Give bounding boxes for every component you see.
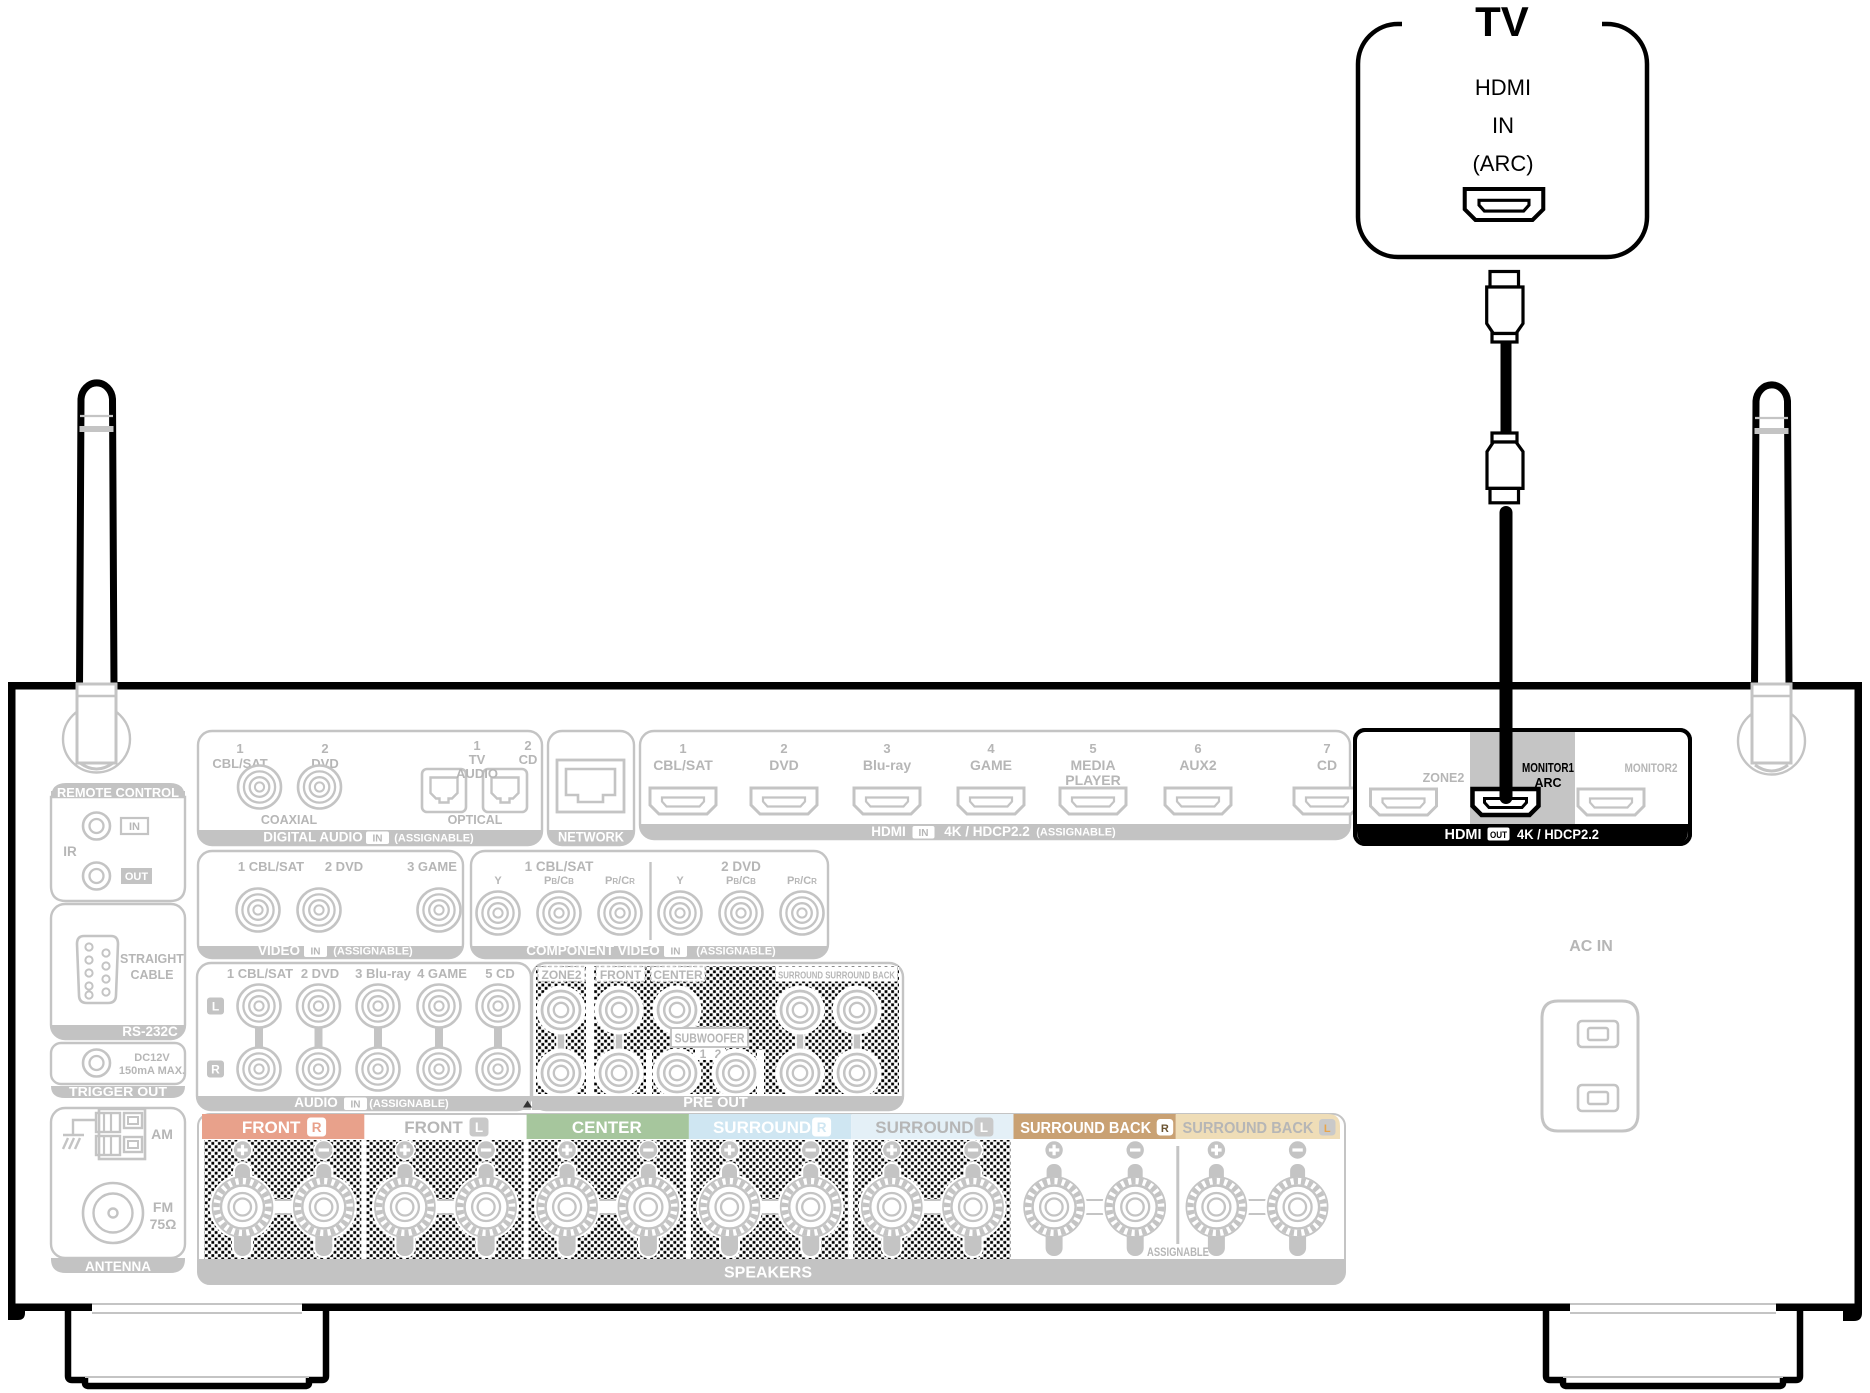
- svg-text:1 CBL/SAT: 1 CBL/SAT: [238, 859, 304, 874]
- svg-text:4: 4: [987, 741, 995, 756]
- svg-text:SURROUND BACK: SURROUND BACK: [1183, 1120, 1315, 1137]
- svg-text:TV: TV: [469, 752, 486, 767]
- svg-text:FRONT: FRONT: [242, 1118, 301, 1137]
- svg-text:3: 3: [883, 741, 890, 756]
- svg-text:Y: Y: [494, 875, 502, 887]
- svg-text:PLAYER: PLAYER: [1065, 772, 1121, 788]
- svg-text:L: L: [1324, 1123, 1331, 1135]
- svg-text:PB/CB: PB/CB: [544, 875, 574, 887]
- svg-text:COMPONENT VIDEO: COMPONENT VIDEO: [526, 943, 660, 958]
- svg-text:HDMI: HDMI: [1444, 827, 1481, 843]
- svg-text:ANTENNA: ANTENNA: [85, 1259, 151, 1274]
- svg-text:4 GAME: 4 GAME: [417, 966, 467, 981]
- svg-text:HDMI: HDMI: [871, 824, 906, 839]
- svg-text:MONITOR2: MONITOR2: [1625, 761, 1678, 775]
- svg-text:R: R: [312, 1120, 322, 1135]
- svg-text:DIGITAL AUDIO: DIGITAL AUDIO: [263, 830, 363, 845]
- svg-text:CENTER: CENTER: [653, 968, 703, 982]
- svg-text:(ARC): (ARC): [1472, 151, 1533, 176]
- svg-text:TV: TV: [1475, 0, 1529, 45]
- svg-text:HDMI: HDMI: [1475, 75, 1531, 100]
- svg-text:OPTICAL: OPTICAL: [448, 813, 503, 827]
- svg-text:IN: IN: [351, 1100, 361, 1111]
- svg-text:MONITOR1: MONITOR1: [1522, 761, 1574, 775]
- svg-text:ZONE2: ZONE2: [541, 968, 581, 982]
- svg-text:NETWORK: NETWORK: [558, 830, 624, 845]
- svg-text:PRE OUT: PRE OUT: [683, 1095, 748, 1111]
- svg-text:L: L: [980, 1120, 988, 1135]
- svg-text:CD: CD: [519, 752, 538, 767]
- svg-text:L: L: [212, 1000, 219, 1014]
- svg-text:75Ω: 75Ω: [150, 1216, 177, 1232]
- svg-text:CBL/SAT: CBL/SAT: [653, 757, 713, 773]
- svg-text:MEDIA: MEDIA: [1070, 757, 1115, 773]
- svg-text:R: R: [1161, 1123, 1169, 1135]
- svg-text:IN: IN: [373, 834, 383, 845]
- svg-text:5 CD: 5 CD: [485, 966, 515, 981]
- svg-text:(ASSIGNABLE): (ASSIGNABLE): [1036, 827, 1116, 839]
- svg-text:2: 2: [780, 741, 787, 756]
- svg-text:1: 1: [236, 741, 243, 756]
- svg-text:TRIGGER OUT: TRIGGER OUT: [69, 1084, 167, 1099]
- svg-text:SURROUND: SURROUND: [875, 1118, 973, 1137]
- svg-text:VIDEO: VIDEO: [258, 943, 300, 958]
- svg-text:SURROUND BACK: SURROUND BACK: [1020, 1120, 1152, 1137]
- svg-text:PR/CR: PR/CR: [787, 875, 817, 887]
- svg-text:1: 1: [700, 1047, 707, 1061]
- svg-text:3 Blu-ray: 3 Blu-ray: [355, 966, 411, 981]
- svg-text:5: 5: [1089, 741, 1096, 756]
- svg-text:OUT: OUT: [125, 871, 149, 883]
- svg-text:DC12V: DC12V: [134, 1052, 170, 1064]
- svg-text:1 CBL/SAT: 1 CBL/SAT: [525, 859, 595, 874]
- svg-text:FM: FM: [153, 1199, 173, 1215]
- svg-text:R: R: [211, 1063, 220, 1077]
- svg-text:GAME: GAME: [970, 757, 1012, 773]
- svg-text:6: 6: [1194, 741, 1201, 756]
- svg-text:AM: AM: [151, 1126, 173, 1142]
- svg-text:3 GAME: 3 GAME: [407, 859, 457, 874]
- svg-text:CENTER: CENTER: [572, 1118, 642, 1137]
- svg-text:(ASSIGNABLE): (ASSIGNABLE): [394, 833, 474, 845]
- svg-text:2 DVD: 2 DVD: [325, 859, 363, 874]
- svg-text:2: 2: [524, 738, 531, 753]
- svg-text:AC IN: AC IN: [1569, 938, 1613, 955]
- svg-text:SURROUND SURROUND BACK: SURROUND SURROUND BACK: [778, 970, 895, 982]
- svg-text:SPEAKERS: SPEAKERS: [724, 1265, 812, 1282]
- svg-text:FRONT: FRONT: [600, 968, 642, 982]
- svg-text:1: 1: [679, 741, 686, 756]
- svg-text:FRONT: FRONT: [404, 1118, 463, 1137]
- svg-text:(ASSIGNABLE): (ASSIGNABLE): [696, 946, 776, 958]
- svg-text:CABLE: CABLE: [130, 968, 173, 982]
- svg-text:IN: IN: [311, 947, 321, 958]
- svg-text:7: 7: [1323, 741, 1330, 756]
- svg-text:SUBWOOFER: SUBWOOFER: [675, 1032, 745, 1046]
- svg-text:DVD: DVD: [769, 757, 799, 773]
- svg-text:STRAIGHT: STRAIGHT: [120, 952, 184, 966]
- svg-text:2 DVD: 2 DVD: [721, 859, 761, 874]
- svg-text:COAXIAL: COAXIAL: [261, 813, 318, 827]
- svg-text:Y: Y: [676, 875, 684, 887]
- svg-text:R: R: [817, 1120, 827, 1135]
- svg-text:IN: IN: [129, 821, 140, 833]
- svg-text:Blu-ray: Blu-ray: [863, 757, 911, 773]
- svg-text:REMOTE CONTROL: REMOTE CONTROL: [57, 785, 179, 800]
- svg-text:PR/CR: PR/CR: [605, 875, 635, 887]
- svg-text:OUT: OUT: [1490, 830, 1507, 840]
- svg-text:2: 2: [321, 741, 328, 756]
- svg-text:ASSIGNABLE: ASSIGNABLE: [1147, 1247, 1209, 1259]
- svg-text:(ASSIGNABLE): (ASSIGNABLE): [369, 1098, 449, 1110]
- svg-text:SURROUND: SURROUND: [713, 1118, 811, 1137]
- svg-text:150mA MAX.: 150mA MAX.: [119, 1065, 185, 1077]
- svg-text:2 DVD: 2 DVD: [301, 966, 339, 981]
- svg-text:IN: IN: [671, 947, 681, 958]
- svg-text:PB/CB: PB/CB: [726, 875, 756, 887]
- svg-text:1 CBL/SAT: 1 CBL/SAT: [227, 966, 293, 981]
- svg-text:L: L: [475, 1120, 483, 1135]
- svg-text:AUDIO: AUDIO: [456, 766, 498, 781]
- svg-text:1: 1: [473, 738, 480, 753]
- svg-text:AUX2: AUX2: [1179, 757, 1217, 773]
- svg-text:(ASSIGNABLE): (ASSIGNABLE): [333, 946, 413, 958]
- svg-text:IN: IN: [919, 828, 929, 839]
- svg-text:4K / HDCP2.2: 4K / HDCP2.2: [1517, 827, 1599, 842]
- svg-text:IR: IR: [63, 844, 77, 859]
- svg-text:IN: IN: [1492, 113, 1514, 138]
- svg-text:RS-232C: RS-232C: [122, 1024, 178, 1039]
- svg-text:AUDIO: AUDIO: [294, 1095, 338, 1110]
- svg-text:ZONE2: ZONE2: [1423, 771, 1465, 785]
- svg-text:CD: CD: [1317, 757, 1337, 773]
- svg-text:4K / HDCP2.2: 4K / HDCP2.2: [944, 824, 1030, 839]
